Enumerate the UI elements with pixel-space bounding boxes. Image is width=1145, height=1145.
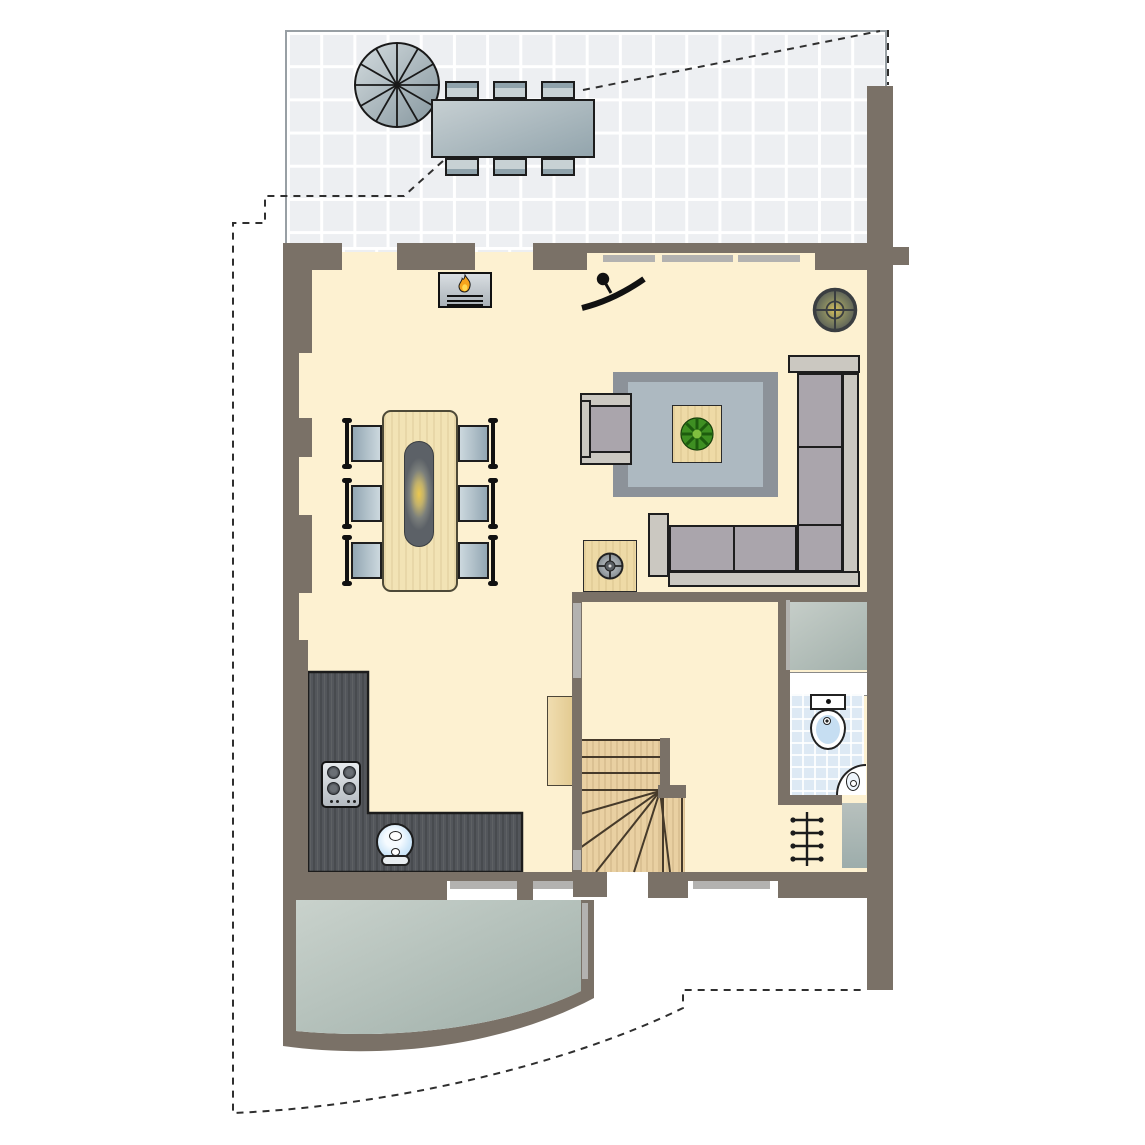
boundary-right-diagonal [583,31,880,90]
boundary-left [233,161,866,1113]
floor-plan [0,0,1145,1145]
property-boundary [0,0,1145,1145]
